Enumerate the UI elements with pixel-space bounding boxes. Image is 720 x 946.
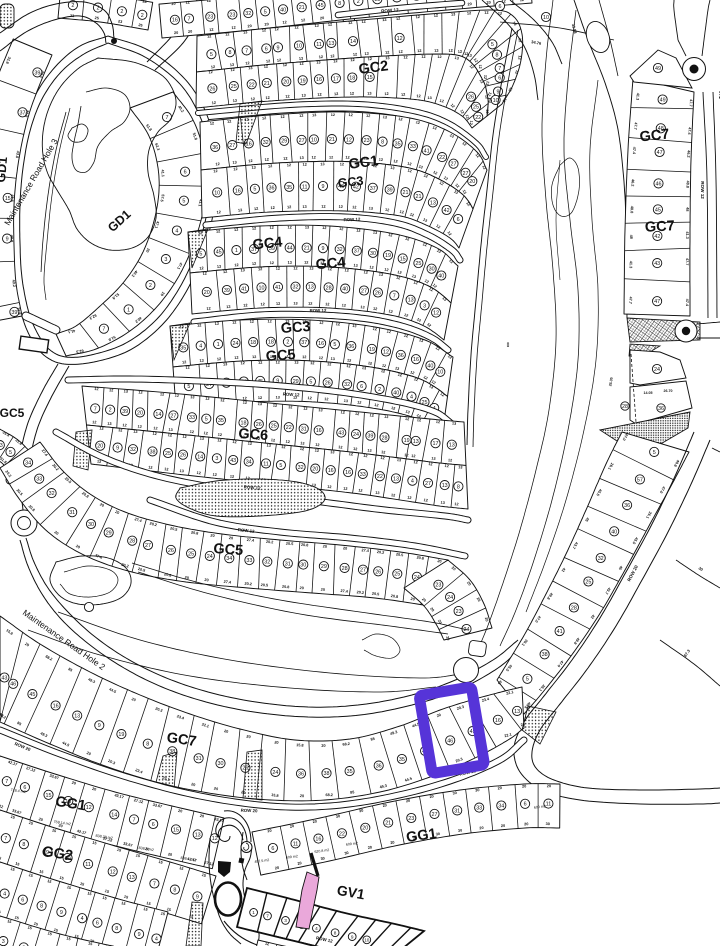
svg-text:12: 12	[209, 28, 214, 32]
svg-text:34: 34	[246, 460, 252, 466]
svg-text:4: 4	[315, 926, 318, 931]
svg-text:41: 41	[557, 629, 563, 635]
svg-text:12: 12	[232, 440, 237, 444]
svg-text:26: 26	[375, 569, 381, 575]
svg-text:20: 20	[437, 559, 442, 564]
svg-text:25: 25	[585, 580, 591, 586]
svg-text:GC4: GC4	[252, 235, 283, 254]
svg-text:13: 13	[382, 18, 387, 22]
svg-text:13: 13	[238, 208, 243, 212]
svg-text:24: 24	[654, 367, 660, 373]
svg-text:12: 12	[234, 263, 239, 267]
svg-text:12: 12	[334, 92, 339, 96]
svg-text:7: 7	[153, 881, 156, 887]
svg-text:27: 27	[432, 812, 438, 818]
svg-text:33: 33	[36, 477, 42, 483]
svg-text:45: 45	[216, 250, 222, 256]
svg-text:31: 31	[454, 808, 460, 814]
svg-text:85: 85	[350, 790, 355, 794]
svg-text:11: 11	[85, 862, 91, 868]
svg-text:12: 12	[304, 261, 308, 265]
svg-text:12: 12	[299, 114, 303, 118]
svg-text:12: 12	[421, 55, 425, 59]
svg-text:47.4: 47.4	[632, 147, 636, 155]
svg-text:13: 13	[223, 362, 228, 366]
svg-text:20: 20	[362, 826, 368, 832]
svg-text:20: 20	[275, 866, 280, 871]
svg-text:2: 2	[109, 408, 112, 414]
svg-text:21: 21	[264, 81, 270, 87]
svg-text:12: 12	[206, 307, 211, 311]
svg-text:27: 27	[145, 543, 151, 549]
svg-text:4: 4	[175, 229, 178, 235]
svg-text:12: 12	[137, 425, 142, 429]
svg-text:20: 20	[406, 799, 411, 804]
svg-text:12: 12	[335, 322, 340, 326]
svg-text:12: 12	[252, 262, 256, 266]
svg-text:22: 22	[475, 115, 481, 121]
svg-text:12: 12	[368, 361, 373, 366]
svg-text:7: 7	[94, 406, 97, 412]
svg-text:47.7: 47.7	[685, 258, 689, 265]
svg-text:27: 27	[229, 143, 235, 149]
svg-text:12: 12	[388, 233, 393, 238]
svg-text:27.4: 27.4	[361, 548, 370, 553]
svg-text:13: 13	[305, 225, 309, 229]
svg-text:47.7: 47.7	[628, 296, 632, 303]
svg-text:12: 12	[300, 447, 305, 451]
svg-text:40: 40	[280, 7, 286, 13]
svg-text:20: 20	[204, 578, 209, 583]
svg-text:3: 3	[164, 257, 167, 263]
svg-text:13: 13	[352, 324, 357, 328]
svg-text:25: 25	[394, 572, 400, 578]
svg-text:48.8: 48.8	[630, 206, 634, 214]
svg-text:36: 36	[376, 764, 382, 770]
svg-text:26: 26	[468, 95, 474, 101]
svg-text:12: 12	[404, 453, 409, 457]
svg-text:13: 13	[514, 709, 520, 715]
svg-text:40: 40	[393, 390, 399, 396]
svg-text:12: 12	[277, 58, 282, 62]
svg-text:13: 13	[288, 261, 292, 265]
svg-text:14: 14	[197, 454, 203, 460]
svg-text:ROW 12: ROW 12	[283, 392, 301, 398]
svg-text:8: 8	[146, 742, 149, 748]
svg-text:12: 12	[258, 361, 262, 365]
svg-text:13: 13	[74, 714, 80, 720]
svg-text:12: 12	[294, 25, 299, 29]
svg-text:12: 12	[346, 364, 351, 368]
svg-text:13: 13	[217, 265, 222, 269]
svg-text:12: 12	[218, 433, 223, 437]
svg-text:30: 30	[452, 791, 457, 796]
svg-text:12: 12	[315, 448, 320, 452]
svg-text:21: 21	[329, 137, 335, 143]
svg-text:15: 15	[173, 827, 179, 833]
svg-text:13: 13	[431, 457, 436, 461]
svg-text:13: 13	[299, 57, 304, 61]
svg-text:13: 13	[215, 322, 220, 326]
svg-text:12: 12	[202, 272, 207, 276]
svg-text:23: 23	[118, 19, 123, 24]
svg-text:12: 12	[267, 320, 271, 324]
svg-text:12: 12	[312, 156, 316, 160]
svg-text:13: 13	[452, 421, 457, 425]
svg-text:13: 13	[276, 396, 280, 400]
svg-text:23: 23	[229, 13, 235, 19]
svg-text:32: 32	[264, 560, 270, 566]
svg-text:4: 4	[155, 937, 158, 943]
svg-text:12: 12	[407, 496, 412, 500]
svg-text:43: 43	[338, 431, 344, 437]
svg-text:12: 12	[231, 26, 236, 30]
svg-text:6: 6	[524, 802, 527, 808]
svg-text:12: 12	[372, 327, 377, 332]
svg-text:12: 12	[138, 391, 143, 395]
svg-text:12: 12	[175, 394, 180, 398]
svg-text:30: 30	[320, 856, 325, 861]
svg-text:32: 32	[293, 285, 299, 291]
svg-text:12: 12	[168, 433, 173, 437]
svg-text:20: 20	[312, 819, 317, 824]
svg-text:13: 13	[449, 443, 455, 449]
svg-text:25: 25	[271, 424, 277, 430]
svg-text:46: 46	[10, 682, 16, 688]
svg-text:10: 10	[296, 44, 302, 50]
svg-text:12: 12	[383, 349, 389, 355]
svg-text:23: 23	[142, 0, 147, 4]
svg-text:12: 12	[283, 63, 288, 67]
svg-text:12: 12	[243, 303, 248, 307]
svg-text:2: 2	[120, 9, 123, 15]
svg-text:12: 12	[478, 64, 482, 69]
svg-text:12: 12	[369, 265, 374, 270]
svg-text:12: 12	[374, 403, 379, 408]
svg-text:8: 8	[457, 484, 460, 490]
svg-text:6: 6	[265, 46, 268, 52]
svg-text:13: 13	[309, 267, 313, 271]
svg-text:35: 35	[180, 345, 186, 351]
svg-text:12: 12	[288, 405, 293, 409]
svg-text:12: 12	[363, 270, 368, 274]
svg-text:12: 12	[308, 302, 312, 306]
svg-text:3: 3	[423, 303, 426, 309]
svg-text:5: 5	[187, 384, 190, 390]
svg-text:36: 36	[624, 503, 630, 509]
svg-text:15: 15	[88, 942, 93, 946]
svg-text:49: 49	[655, 66, 661, 72]
svg-text:13: 13	[232, 160, 237, 164]
svg-text:12: 12	[185, 366, 190, 370]
svg-text:40: 40	[342, 287, 348, 293]
svg-text:12: 12	[254, 207, 259, 211]
svg-text:13: 13	[240, 268, 245, 272]
svg-text:13: 13	[430, 200, 436, 206]
svg-text:48.8: 48.8	[685, 180, 689, 188]
svg-text:18: 18	[250, 340, 256, 346]
svg-text:12: 12	[327, 362, 332, 366]
svg-text:12: 12	[207, 0, 212, 3]
svg-text:12: 12	[258, 267, 262, 271]
svg-text:24: 24	[353, 432, 359, 438]
svg-text:1: 1	[235, 248, 238, 254]
svg-text:12: 12	[319, 55, 324, 59]
svg-text:16: 16	[53, 704, 59, 710]
svg-text:20: 20	[267, 829, 272, 834]
svg-text:12: 12	[233, 167, 238, 171]
svg-text:24: 24	[207, 554, 213, 560]
svg-text:32: 32	[245, 11, 251, 17]
svg-text:30: 30	[370, 251, 376, 257]
svg-text:12: 12	[283, 157, 288, 161]
svg-text:2: 2	[357, 0, 360, 5]
svg-text:27: 27	[451, 162, 457, 168]
svg-text:13: 13	[442, 483, 448, 489]
svg-text:12: 12	[413, 460, 418, 464]
svg-text:12: 12	[398, 50, 403, 54]
svg-text:21: 21	[403, 190, 409, 196]
svg-text:9: 9	[277, 45, 280, 51]
svg-text:12: 12	[232, 320, 236, 324]
svg-text:12: 12	[197, 323, 202, 327]
svg-text:12: 12	[110, 869, 116, 875]
svg-text:13: 13	[312, 113, 316, 117]
svg-text:7: 7	[4, 836, 7, 842]
svg-text:45: 45	[29, 692, 35, 698]
svg-text:12: 12	[380, 456, 385, 460]
svg-text:19: 19	[300, 78, 306, 84]
svg-text:20: 20	[524, 822, 528, 826]
svg-text:19: 19	[404, 438, 410, 444]
svg-text:12: 12	[273, 403, 278, 407]
svg-text:9: 9	[116, 446, 119, 452]
svg-text:35: 35	[395, 141, 401, 147]
svg-text:22: 22	[339, 831, 345, 837]
svg-text:19: 19	[369, 347, 375, 353]
svg-text:6: 6	[457, 217, 460, 223]
svg-text:9: 9	[351, 934, 354, 939]
svg-text:12: 12	[343, 487, 348, 491]
svg-text:13: 13	[320, 162, 324, 166]
svg-text:1: 1	[127, 307, 130, 313]
svg-text:5: 5	[309, 379, 312, 385]
svg-text:32: 32	[344, 382, 350, 388]
svg-text:12: 12	[339, 227, 344, 231]
svg-text:25: 25	[231, 84, 237, 90]
svg-text:12: 12	[342, 303, 347, 307]
svg-text:12: 12	[384, 268, 389, 273]
svg-text:1: 1	[252, 910, 255, 915]
svg-text:37: 37	[354, 249, 360, 255]
svg-text:GC3: GC3	[280, 319, 311, 337]
svg-text:13: 13	[293, 302, 297, 306]
svg-text:45: 45	[318, 3, 324, 9]
svg-text:40: 40	[438, 273, 444, 279]
svg-text:20: 20	[343, 546, 348, 550]
svg-text:18: 18	[268, 340, 274, 346]
svg-text:16: 16	[316, 428, 322, 434]
svg-text:12: 12	[250, 320, 254, 324]
svg-text:9: 9	[138, 932, 141, 938]
svg-text:GC5: GC5	[0, 406, 25, 420]
svg-text:27: 27	[360, 568, 366, 574]
svg-text:43: 43	[230, 458, 236, 464]
svg-text:16: 16	[345, 470, 351, 476]
svg-text:20: 20	[547, 784, 551, 788]
svg-text:20: 20	[204, 290, 210, 296]
svg-text:13: 13	[251, 165, 256, 169]
svg-text:12: 12	[398, 117, 403, 122]
svg-text:14: 14	[111, 812, 117, 818]
svg-text:12: 12	[357, 400, 362, 405]
svg-text:4: 4	[81, 916, 84, 922]
svg-text:5: 5	[653, 450, 656, 456]
svg-text:28: 28	[326, 285, 332, 291]
svg-text:13: 13	[362, 366, 367, 371]
svg-text:12: 12	[243, 400, 248, 404]
svg-text:12: 12	[208, 70, 213, 74]
svg-text:12: 12	[225, 32, 230, 36]
svg-text:11: 11	[263, 461, 269, 467]
svg-text:13: 13	[330, 357, 335, 361]
svg-text:12: 12	[423, 498, 428, 502]
svg-text:12: 12	[276, 267, 280, 271]
svg-text:12: 12	[454, 502, 459, 506]
svg-text:47.4: 47.4	[687, 127, 692, 136]
svg-text:13: 13	[384, 415, 389, 419]
svg-text:12: 12	[381, 450, 386, 454]
svg-text:5: 5	[9, 450, 12, 456]
svg-text:25: 25	[94, 16, 99, 20]
svg-text:12: 12	[285, 94, 290, 98]
svg-text:40: 40	[611, 529, 617, 535]
svg-text:12: 12	[211, 65, 216, 69]
svg-text:13: 13	[195, 832, 201, 838]
svg-text:12: 12	[331, 113, 335, 117]
svg-text:20: 20	[469, 179, 475, 185]
svg-text:13: 13	[234, 228, 239, 232]
svg-text:28: 28	[342, 566, 348, 572]
svg-text:46.2: 46.2	[686, 150, 690, 158]
svg-text:12: 12	[369, 413, 374, 417]
svg-text:13: 13	[308, 285, 314, 291]
svg-text:29: 29	[281, 139, 287, 145]
svg-text:68.2: 68.2	[325, 793, 332, 797]
svg-text:12: 12	[353, 52, 358, 56]
svg-text:46: 46	[656, 181, 662, 187]
svg-text:47.7: 47.7	[633, 122, 638, 130]
svg-text:33: 33	[410, 144, 416, 150]
svg-text:12: 12	[212, 836, 218, 842]
svg-text:41.3: 41.3	[629, 261, 633, 268]
svg-text:12: 12	[264, 65, 269, 69]
svg-text:12: 12	[393, 159, 398, 164]
svg-text:ROW 12: ROW 12	[700, 181, 705, 199]
svg-text:13: 13	[226, 305, 231, 309]
svg-text:13: 13	[378, 272, 383, 277]
svg-text:12: 12	[122, 423, 127, 427]
svg-text:20: 20	[171, 2, 176, 6]
svg-text:12: 12	[153, 426, 158, 430]
svg-text:20: 20	[97, 444, 103, 450]
svg-text:12: 12	[270, 226, 274, 230]
svg-text:41: 41	[241, 287, 247, 293]
svg-text:20: 20	[320, 16, 325, 20]
svg-text:2: 2	[141, 13, 144, 19]
svg-text:6: 6	[96, 921, 99, 927]
svg-text:6: 6	[184, 170, 187, 176]
svg-text:12: 12	[340, 410, 345, 414]
svg-text:9: 9	[322, 184, 325, 190]
svg-text:19: 19	[118, 732, 124, 738]
svg-text:13: 13	[266, 443, 271, 447]
svg-text:10: 10	[311, 137, 317, 143]
svg-text:36: 36	[398, 353, 404, 359]
svg-text:12: 12	[212, 101, 217, 105]
svg-text:GC4: GC4	[315, 255, 346, 274]
svg-text:20: 20	[410, 597, 415, 602]
svg-text:6: 6	[498, 76, 501, 82]
svg-text:12: 12	[148, 465, 153, 469]
svg-text:13: 13	[375, 491, 380, 495]
svg-text:12: 12	[385, 50, 390, 54]
svg-text:13: 13	[343, 399, 348, 403]
svg-text:13: 13	[243, 30, 248, 34]
svg-text:12: 12	[321, 205, 325, 209]
svg-text:12: 12	[217, 438, 222, 442]
svg-text:13: 13	[408, 298, 414, 304]
svg-text:12: 12	[92, 420, 97, 424]
svg-text:16: 16	[318, 341, 324, 347]
svg-text:20.8: 20.8	[282, 585, 290, 590]
svg-text:12: 12	[230, 474, 235, 478]
svg-text:12: 12	[164, 467, 169, 471]
svg-text:12: 12	[210, 121, 215, 125]
svg-text:13: 13	[314, 24, 319, 28]
svg-text:2: 2	[378, 387, 381, 393]
svg-text:12: 12	[287, 205, 291, 209]
svg-text:30: 30	[546, 822, 550, 826]
svg-text:30: 30	[88, 522, 94, 528]
svg-text:27: 27	[361, 289, 367, 295]
svg-text:13: 13	[364, 52, 369, 56]
svg-text:13: 13	[465, 114, 470, 119]
svg-text:32: 32	[263, 140, 269, 146]
svg-text:12: 12	[433, 311, 439, 317]
svg-text:26: 26	[180, 453, 186, 459]
svg-text:10: 10	[259, 285, 265, 291]
svg-text:12: 12	[444, 464, 449, 468]
svg-text:27: 27	[170, 413, 176, 419]
svg-text:12: 12	[411, 454, 416, 458]
svg-text:23: 23	[408, 816, 414, 822]
svg-text:13: 13	[373, 231, 378, 236]
svg-text:13: 13	[330, 450, 335, 454]
svg-text:13: 13	[199, 359, 204, 363]
svg-text:12: 12	[349, 452, 354, 456]
svg-text:6: 6	[152, 822, 155, 828]
svg-text:20: 20	[467, 2, 472, 6]
svg-text:12: 12	[347, 358, 352, 362]
svg-text:30: 30	[475, 788, 480, 792]
svg-text:27: 27	[463, 171, 469, 177]
svg-text:7: 7	[133, 817, 136, 823]
svg-text:12: 12	[265, 942, 270, 946]
svg-text:39: 39	[387, 188, 393, 194]
svg-text:27.4: 27.4	[340, 589, 349, 594]
svg-text:12: 12	[274, 27, 279, 31]
